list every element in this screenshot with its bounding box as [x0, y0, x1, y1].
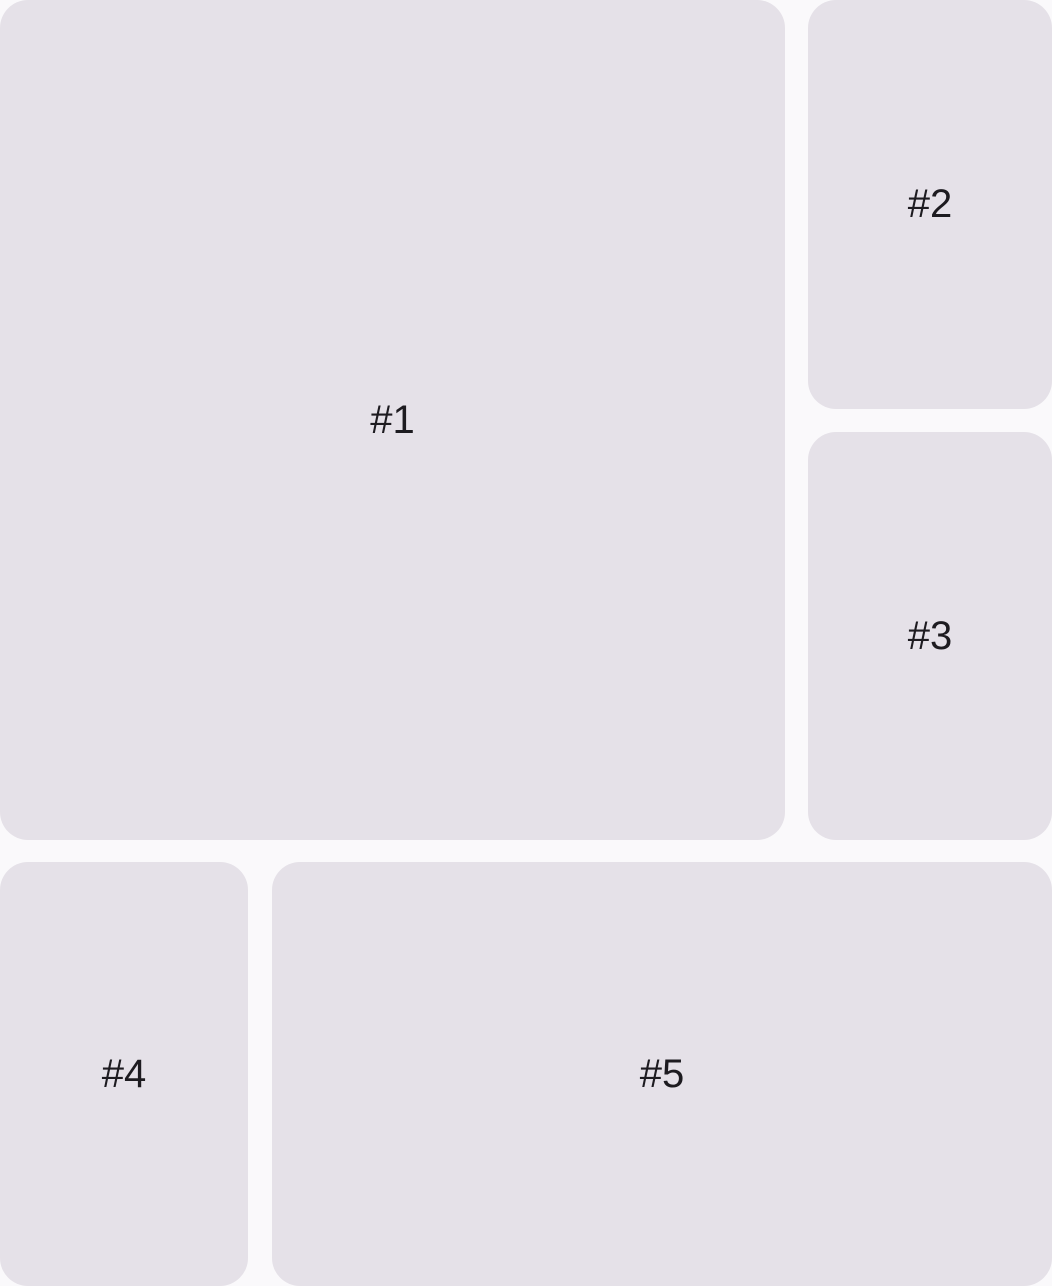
panel-1-label: #1	[370, 400, 415, 440]
panel-4: #4	[0, 862, 248, 1286]
panel-3-label: #3	[908, 616, 953, 656]
panel-3: #3	[808, 432, 1052, 841]
panel-2: #2	[808, 0, 1052, 409]
panel-5-label: #5	[640, 1054, 685, 1094]
right-column: #2 #3	[808, 0, 1052, 840]
bottom-row: #4 #5	[0, 862, 1052, 1286]
top-row: #1 #2 #3	[0, 0, 1052, 840]
canonical-layout: #1 #2 #3 #4 #5	[0, 0, 1052, 1286]
panel-2-label: #2	[908, 184, 953, 224]
panel-4-label: #4	[102, 1054, 147, 1094]
panel-1: #1	[0, 0, 785, 840]
panel-5: #5	[272, 862, 1052, 1286]
